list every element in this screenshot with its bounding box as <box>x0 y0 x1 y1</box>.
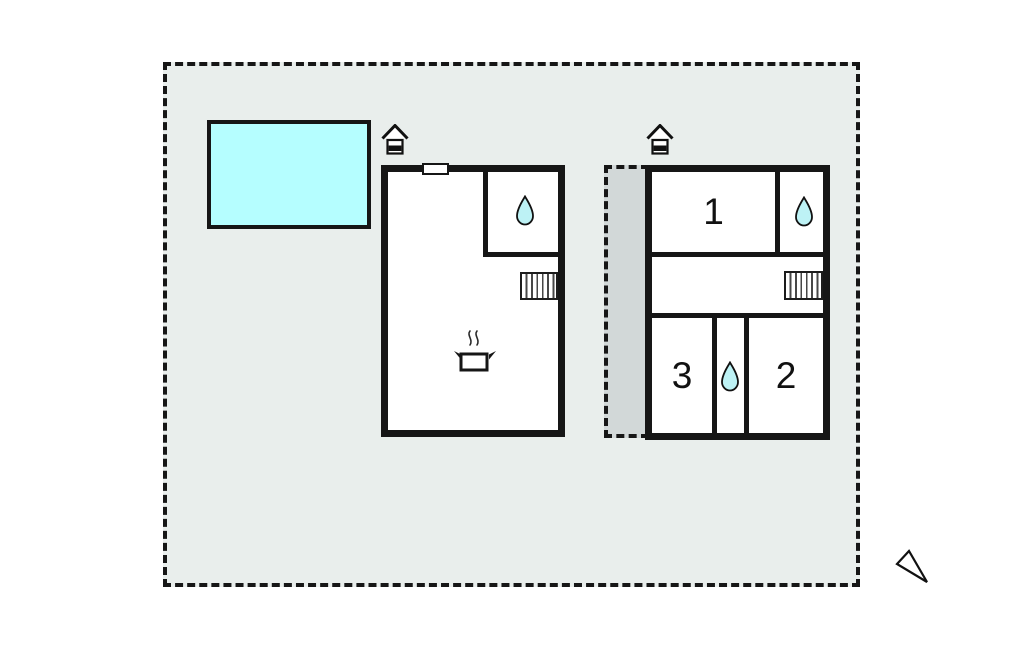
bathroom-wall <box>483 252 558 257</box>
entrance-door <box>422 163 449 175</box>
room-2: 2 <box>749 318 823 433</box>
house-entrance-icon <box>381 124 409 155</box>
room-3-label: 3 <box>672 355 693 397</box>
interior-wall <box>652 252 823 257</box>
room-1-label: 1 <box>703 191 724 233</box>
floor-plan: 1 3 2 <box>0 0 1024 652</box>
room-2-label: 2 <box>776 355 797 397</box>
house-entrance-icon <box>646 124 674 155</box>
water-drop-icon <box>514 195 536 227</box>
north-arrow-icon <box>890 543 934 589</box>
bathroom-wall <box>483 172 488 257</box>
room-1: 1 <box>652 172 775 252</box>
building-annex: 1 3 2 <box>645 165 830 440</box>
terrace <box>604 165 649 438</box>
interior-wall <box>712 318 717 433</box>
stairs-icon <box>784 271 823 300</box>
building-main <box>381 165 565 437</box>
interior-wall <box>775 172 780 257</box>
stairs-icon <box>520 272 558 300</box>
cooking-pot-icon <box>453 327 497 373</box>
water-drop-icon <box>719 361 741 393</box>
room-3: 3 <box>652 318 712 433</box>
swimming-pool <box>207 120 371 229</box>
water-drop-icon <box>793 196 815 228</box>
